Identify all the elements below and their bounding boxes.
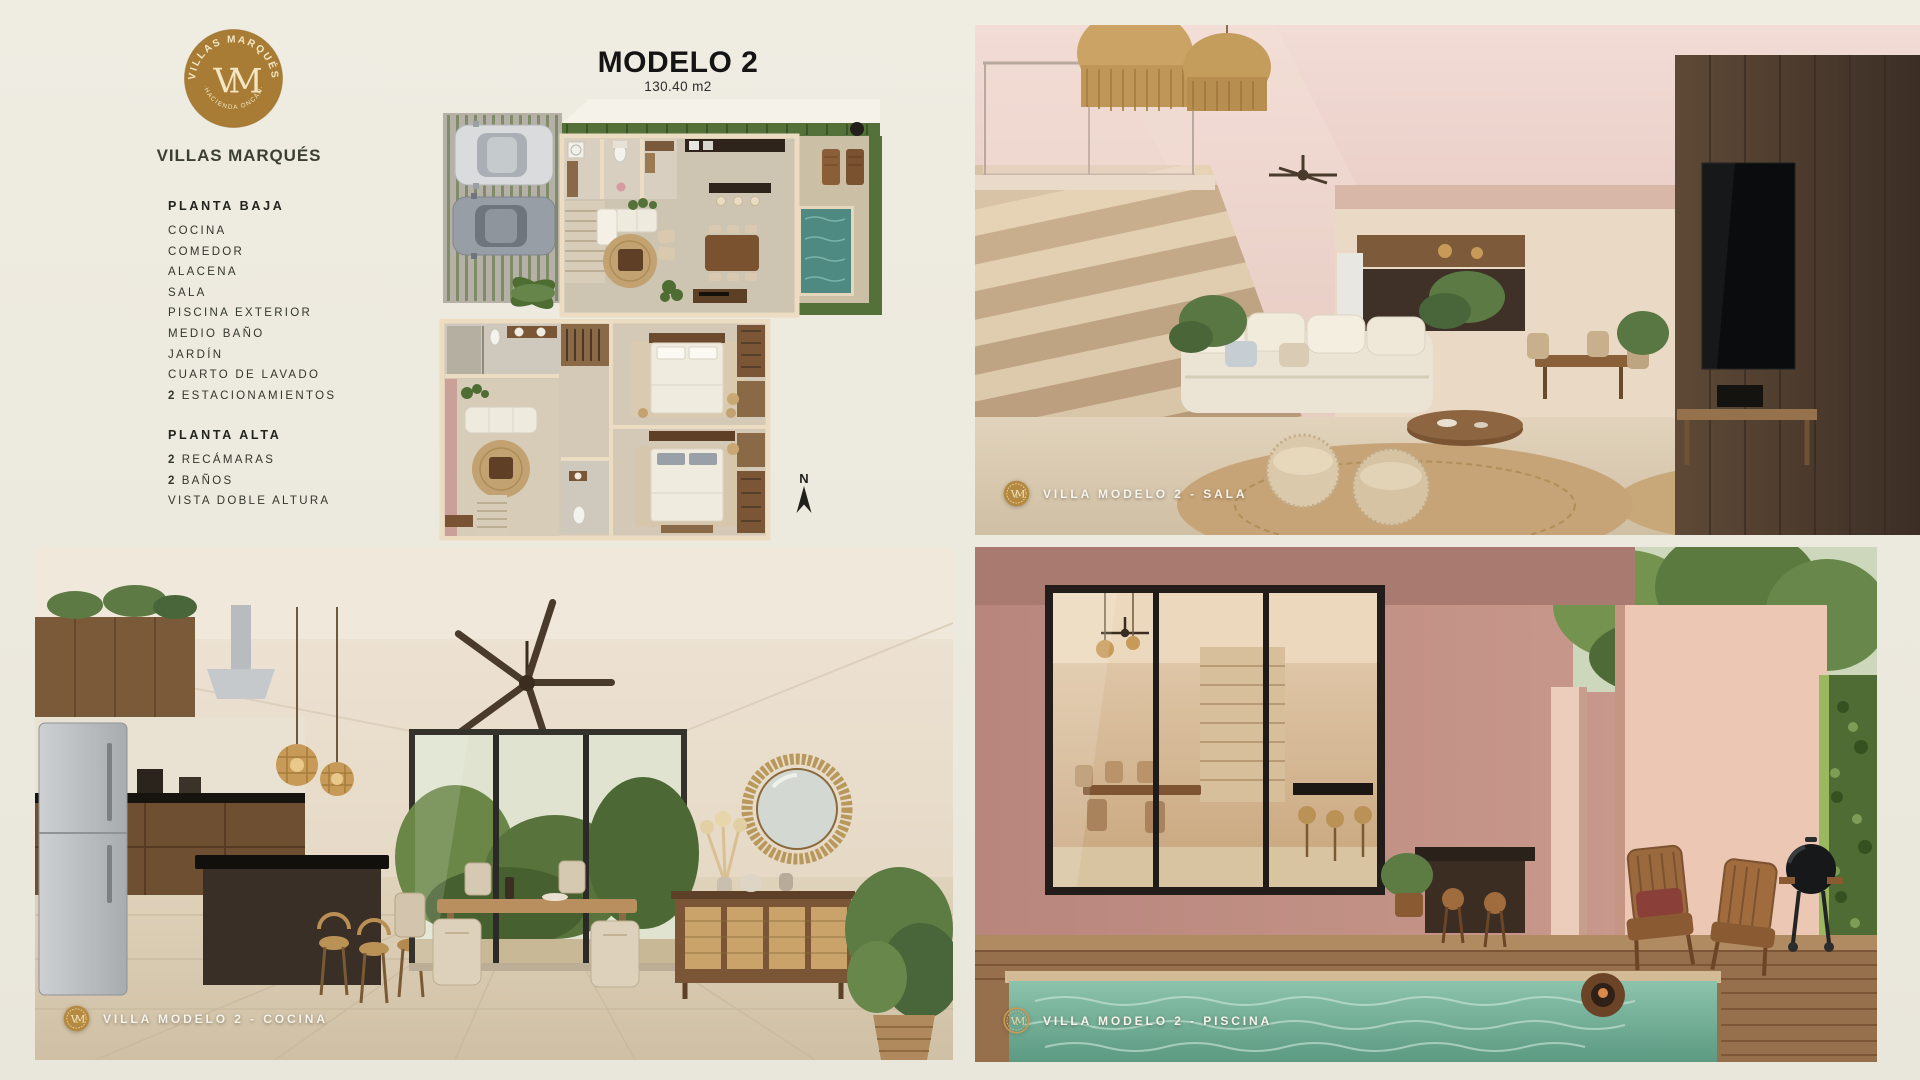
kitchen-island: [195, 855, 389, 985]
list-item: VISTA DOBLE ALTURA: [168, 491, 330, 512]
list-item: 2RECÁMARAS: [168, 450, 330, 471]
sink: [617, 183, 626, 192]
piscina-render: [975, 547, 1877, 1062]
kitchen-counter: [685, 139, 785, 152]
photo-sala: VM VILLA MODELO 2 - SALA: [975, 25, 1920, 535]
list-item: PISCINA EXTERIOR: [168, 303, 336, 324]
desk: [737, 381, 765, 417]
media-shelf: [649, 431, 735, 441]
cocina-render: [35, 547, 953, 1060]
desk: [737, 433, 765, 467]
bathroom: [445, 324, 559, 376]
brand-logo: VILLAS MARQUÉS ·HACIENDA ONCÁN· VM: [183, 28, 284, 129]
planta-alta-title: PLANTA ALTA: [168, 428, 330, 442]
car: [453, 193, 555, 259]
double-height-lounge: [445, 379, 559, 536]
driveway: [443, 113, 562, 315]
photo-caption: VM VILLA MODELO 2 - COCINA: [63, 1005, 328, 1032]
north-arrow-icon: [797, 486, 812, 513]
headboard: [649, 333, 725, 343]
list-item: 2BAÑOS: [168, 471, 330, 492]
chaise: [465, 407, 537, 433]
floor-plan-ground: [437, 97, 895, 319]
credenza: [671, 873, 855, 999]
ledge: [445, 515, 473, 527]
outdoor-bar: [1415, 847, 1535, 947]
pool-terrace: [795, 122, 882, 315]
list-item: COCINA: [168, 221, 336, 242]
svg-text:VM: VM: [1010, 1017, 1025, 1028]
north-compass: N: [789, 471, 819, 515]
house-footprint: [562, 136, 797, 315]
list-item: COMEDOR: [168, 242, 336, 263]
caption-text: VILLA MODELO 2 - SALA: [1043, 487, 1247, 501]
pendant-light: [1077, 25, 1193, 111]
list-item: 2ESTACIONAMIENTOS: [168, 386, 336, 407]
coffee-maker: [137, 769, 163, 793]
pouf: [1267, 435, 1339, 507]
closet: [561, 324, 609, 366]
caption-badge-icon: VM: [1003, 480, 1030, 507]
model-title: MODELO 2: [518, 46, 838, 80]
sala-render: [975, 25, 1920, 535]
planta-baja-list: PLANTA BAJA COCINA COMEDOR ALACENA SALA …: [168, 199, 336, 406]
compass-label: N: [799, 471, 808, 486]
floor-plan-upper: [437, 319, 773, 541]
planta-alta-list: PLANTA ALTA 2RECÁMARAS 2BAÑOS VISTA DOBL…: [168, 428, 330, 512]
glass-door: [1045, 585, 1385, 895]
photo-caption: VM VILLA MODELO 2 - PISCINA: [1003, 1007, 1272, 1034]
pool-water: [801, 209, 851, 293]
toaster: [179, 777, 201, 793]
bedroom-1: [631, 325, 765, 418]
list-item: ALACENA: [168, 262, 336, 283]
console-table: [1677, 409, 1817, 420]
list-item: SALA: [168, 283, 336, 304]
fridge: [39, 723, 127, 995]
list-item: JARDÍN: [168, 345, 336, 366]
list-item: MEDIO BAÑO: [168, 324, 336, 345]
kitchen-island: [709, 183, 771, 193]
coffee-table: [618, 249, 643, 271]
fire-table: [1581, 973, 1625, 1017]
tv-wall: [1675, 55, 1920, 535]
caption-text: VILLA MODELO 2 - COCINA: [103, 1012, 328, 1026]
car: [455, 121, 553, 189]
range-hood: [231, 605, 251, 669]
caption-badge-icon: VM: [1003, 1007, 1030, 1034]
brand-name: VILLAS MARQUÉS: [119, 146, 359, 166]
washer: [568, 142, 584, 158]
photo-cocina: VM VILLA MODELO 2 - COCINA: [35, 547, 953, 1060]
caption-text: VILLA MODELO 2 - PISCINA: [1043, 1014, 1272, 1028]
brochure-page: VILLAS MARQUÉS ·HACIENDA ONCÁN· VM VILLA…: [0, 0, 1920, 1080]
stairs: [1200, 647, 1285, 802]
model-area: 130.40 m2: [518, 79, 838, 94]
list-item: CUARTO DE LAVADO: [168, 365, 336, 386]
photo-piscina: VM VILLA MODELO 2 - PISCINA: [975, 547, 1877, 1062]
planta-baja-title: PLANTA BAJA: [168, 199, 336, 213]
photo-caption: VM VILLA MODELO 2 - SALA: [1003, 480, 1247, 507]
pouf: [1353, 449, 1429, 525]
half-bath: [561, 459, 609, 533]
roof-slab: [562, 99, 880, 123]
coffee-table: [1407, 410, 1523, 446]
stairs: [477, 495, 507, 536]
caption-badge-icon: VM: [63, 1005, 90, 1032]
